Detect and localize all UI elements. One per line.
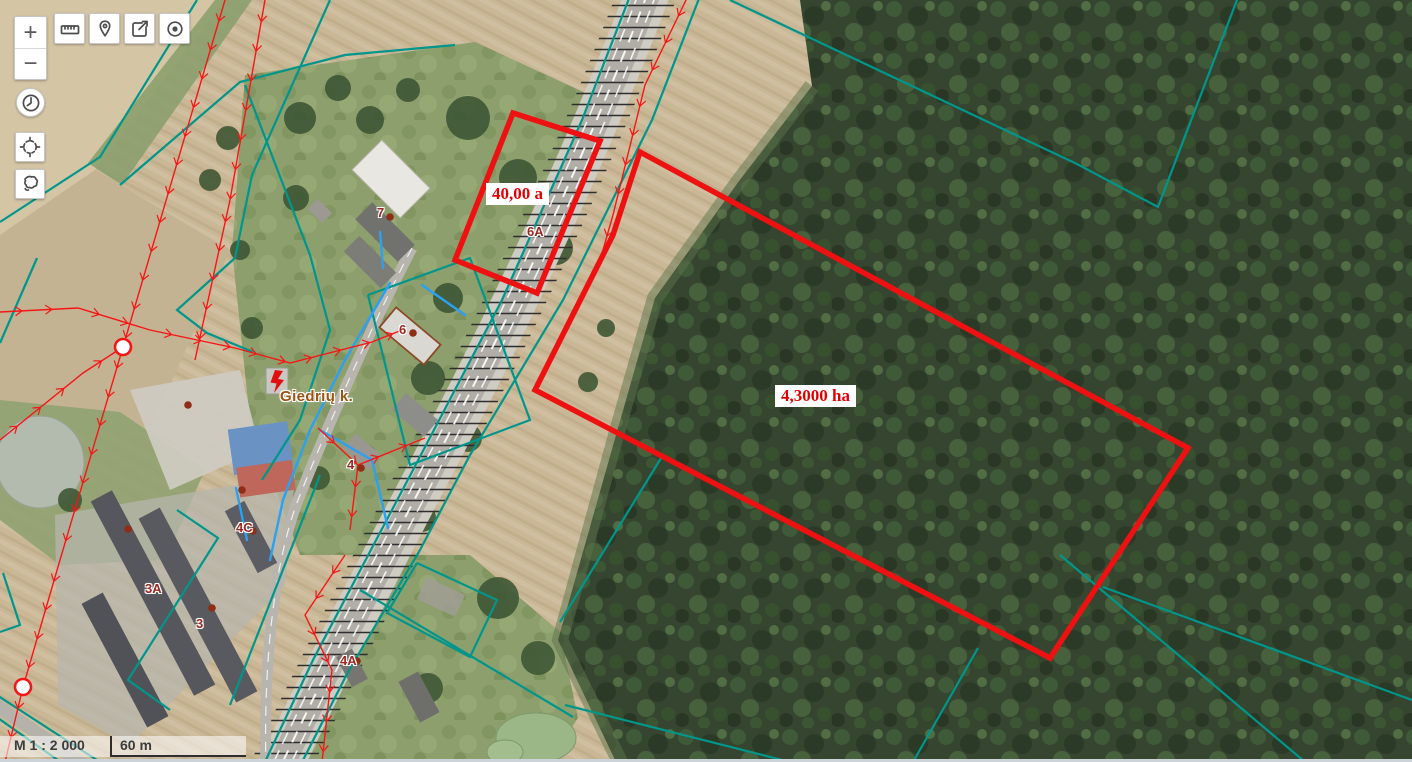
address-point <box>208 604 216 612</box>
target-icon <box>163 17 187 41</box>
marker-button[interactable] <box>89 13 120 44</box>
power-line-node <box>15 679 31 695</box>
address-point <box>124 525 132 533</box>
history-button[interactable] <box>16 88 45 117</box>
power-line-tick <box>32 407 40 408</box>
address-point <box>353 657 361 665</box>
zoom-control: + − <box>14 16 47 80</box>
map-pin-icon <box>93 17 117 41</box>
map-canvas[interactable] <box>0 0 1412 762</box>
scale-bar-tick <box>110 736 112 757</box>
share-button[interactable] <box>124 13 155 44</box>
address-point <box>386 213 394 221</box>
zoom-in-button[interactable]: + <box>15 17 46 48</box>
address-point <box>249 527 257 535</box>
share-icon <box>128 17 152 41</box>
power-line-node <box>115 339 131 355</box>
scale-bar: M 1 : 2 000 60 m <box>0 736 246 757</box>
locate-button[interactable] <box>15 132 45 162</box>
address-point <box>184 401 192 409</box>
target-button[interactable] <box>159 13 190 44</box>
crosshair-icon <box>18 135 42 159</box>
scale-bar-line <box>110 755 246 757</box>
lasso-icon <box>18 172 42 196</box>
scale-bar-distance: 60 m <box>120 737 152 753</box>
lasso-button[interactable] <box>15 169 45 199</box>
clock-icon <box>19 91 43 115</box>
zoom-out-button[interactable]: − <box>15 48 46 79</box>
power-line-tick <box>56 388 64 389</box>
map-viewer-window: 40,00 a4,3000 ha6A6744C3A34AGiedrių k. +… <box>0 0 1412 762</box>
transformer-station <box>266 368 288 394</box>
address-point <box>238 486 246 494</box>
address-point <box>357 464 365 472</box>
power-line-tick <box>9 426 17 427</box>
address-point <box>409 329 417 337</box>
map-scale-text: M 1 : 2 000 <box>14 737 85 753</box>
ruler-icon <box>58 17 82 41</box>
measure-button[interactable] <box>54 13 85 44</box>
